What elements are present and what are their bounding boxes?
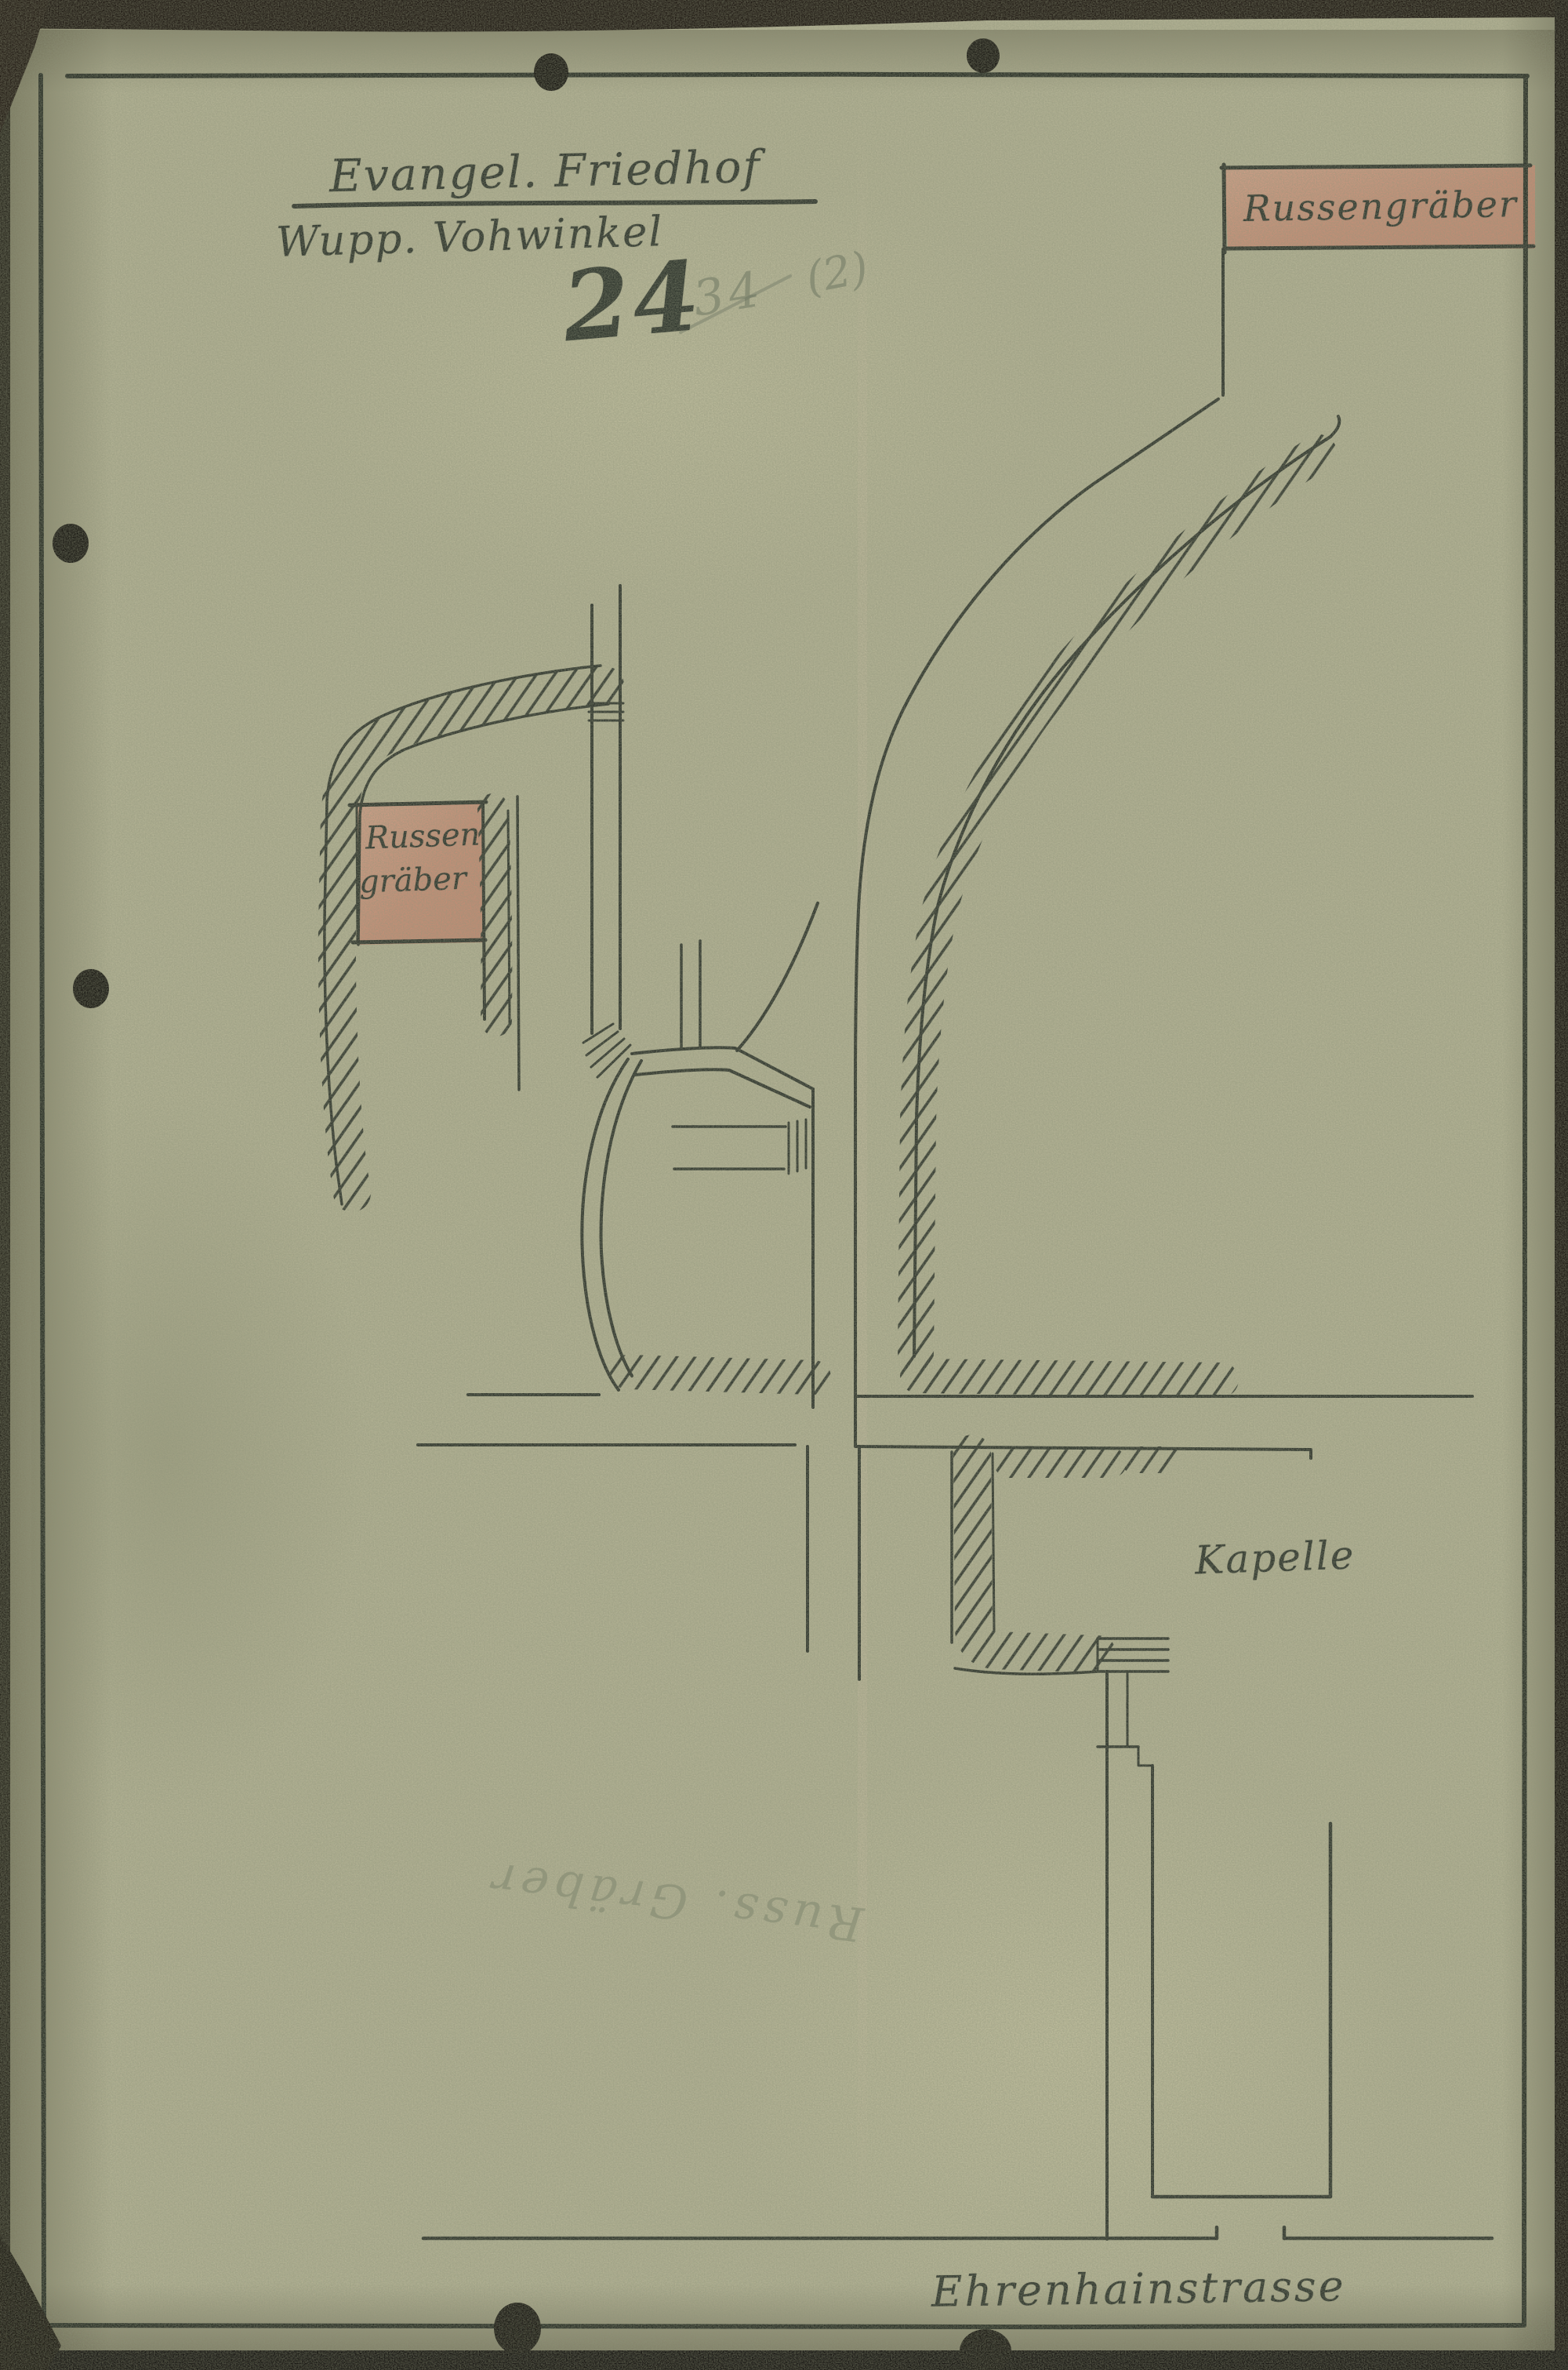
- scan-edge-left: [0, 0, 10, 2370]
- page-title-line2: Wupp. Vohwinkel: [275, 208, 664, 267]
- paper-blotch: [274, 196, 1058, 604]
- page-title-line1: Evangel. Friedhof: [328, 141, 761, 202]
- scan-artifacts: [0, 0, 1568, 2370]
- paper-grain: [0, 0, 1568, 2370]
- label-russengraeber-left-line2: gräber: [358, 861, 467, 901]
- highlight-areas: [357, 165, 1535, 945]
- hedge-left-inner-strip: [493, 809, 496, 1021]
- label-street: Ehrenhainstrasse: [931, 2261, 1346, 2316]
- punch-holes: [53, 38, 1011, 2370]
- paper-streak: [858, 78, 867, 2274]
- ink-linework: [24, 74, 1534, 2328]
- scan-corner-bottom-left: [0, 2234, 61, 2370]
- paper-edge-shading-bottom: [0, 2284, 1568, 2354]
- pencil-strike: [681, 276, 790, 332]
- pencil-suffix: (2): [802, 242, 873, 304]
- scan-dark-edges: [0, 0, 1568, 2370]
- punch-hole: [967, 38, 1000, 73]
- scan-edge-top: [0, 0, 1568, 31]
- left-enclosure-edges: [325, 666, 608, 1204]
- scan-edge-right: [1555, 0, 1568, 2370]
- label-russengraeber-left-line1: Russen: [365, 816, 481, 856]
- scanned-cemetery-plan: { "header": { "title_line1": "Evangel. F…: [0, 0, 1568, 2370]
- hedges: [337, 452, 1319, 1654]
- hedge-right-road: [916, 452, 1319, 1353]
- hedge-kapelle-L: [972, 1454, 1098, 1654]
- russengraeber-top-box-outline: [1221, 165, 1534, 252]
- paper-edge-shading-top: [0, 30, 1568, 93]
- paper-blotch: [706, 1725, 1411, 2352]
- scan-corner-top-left: [0, 0, 49, 133]
- scan-edge-bottom: [0, 2350, 1568, 2370]
- russengraeber-top-highlight: [1225, 165, 1535, 250]
- punch-hole: [53, 524, 89, 563]
- paper-edge-shading-left: [9, 0, 111, 2370]
- russengraeber-left-highlight: [357, 800, 485, 945]
- main-roads: [418, 1395, 1472, 1679]
- russengraeber-left-box-outline: [350, 802, 486, 1019]
- paper-blotch: [31, 1098, 361, 1803]
- label-layer: Evangel. Friedhof Wupp. Vohwinkel 24 34 …: [0, 0, 1568, 2370]
- paper-edge-shading-right: [1502, 0, 1557, 2370]
- sheet-number: 24: [558, 239, 707, 364]
- street-lines: [423, 2227, 1492, 2238]
- pencil-note-reversed: Russ. Gräber: [485, 1851, 866, 1951]
- label-russengraeber-top: Russengräber: [1243, 183, 1519, 230]
- right-road: [737, 249, 1339, 1446]
- map-drawing: [0, 0, 1568, 2370]
- hedge-left-enclosure: [337, 685, 605, 1193]
- punch-hole: [73, 969, 109, 1008]
- central-block: [582, 586, 813, 1407]
- pencil-number: 34: [689, 260, 768, 327]
- punch-hole: [494, 2303, 541, 2354]
- border-frame: [24, 74, 1527, 2328]
- title-underline: [294, 201, 815, 206]
- hedge-horizontal-right: [917, 1376, 1221, 1380]
- hedge-block-bottom: [627, 1372, 814, 1377]
- kapelle-area: [952, 1452, 1330, 2239]
- punch-hole: [960, 2329, 1011, 2370]
- label-kapelle: Kapelle: [1194, 1532, 1356, 1583]
- punch-hole: [534, 53, 568, 91]
